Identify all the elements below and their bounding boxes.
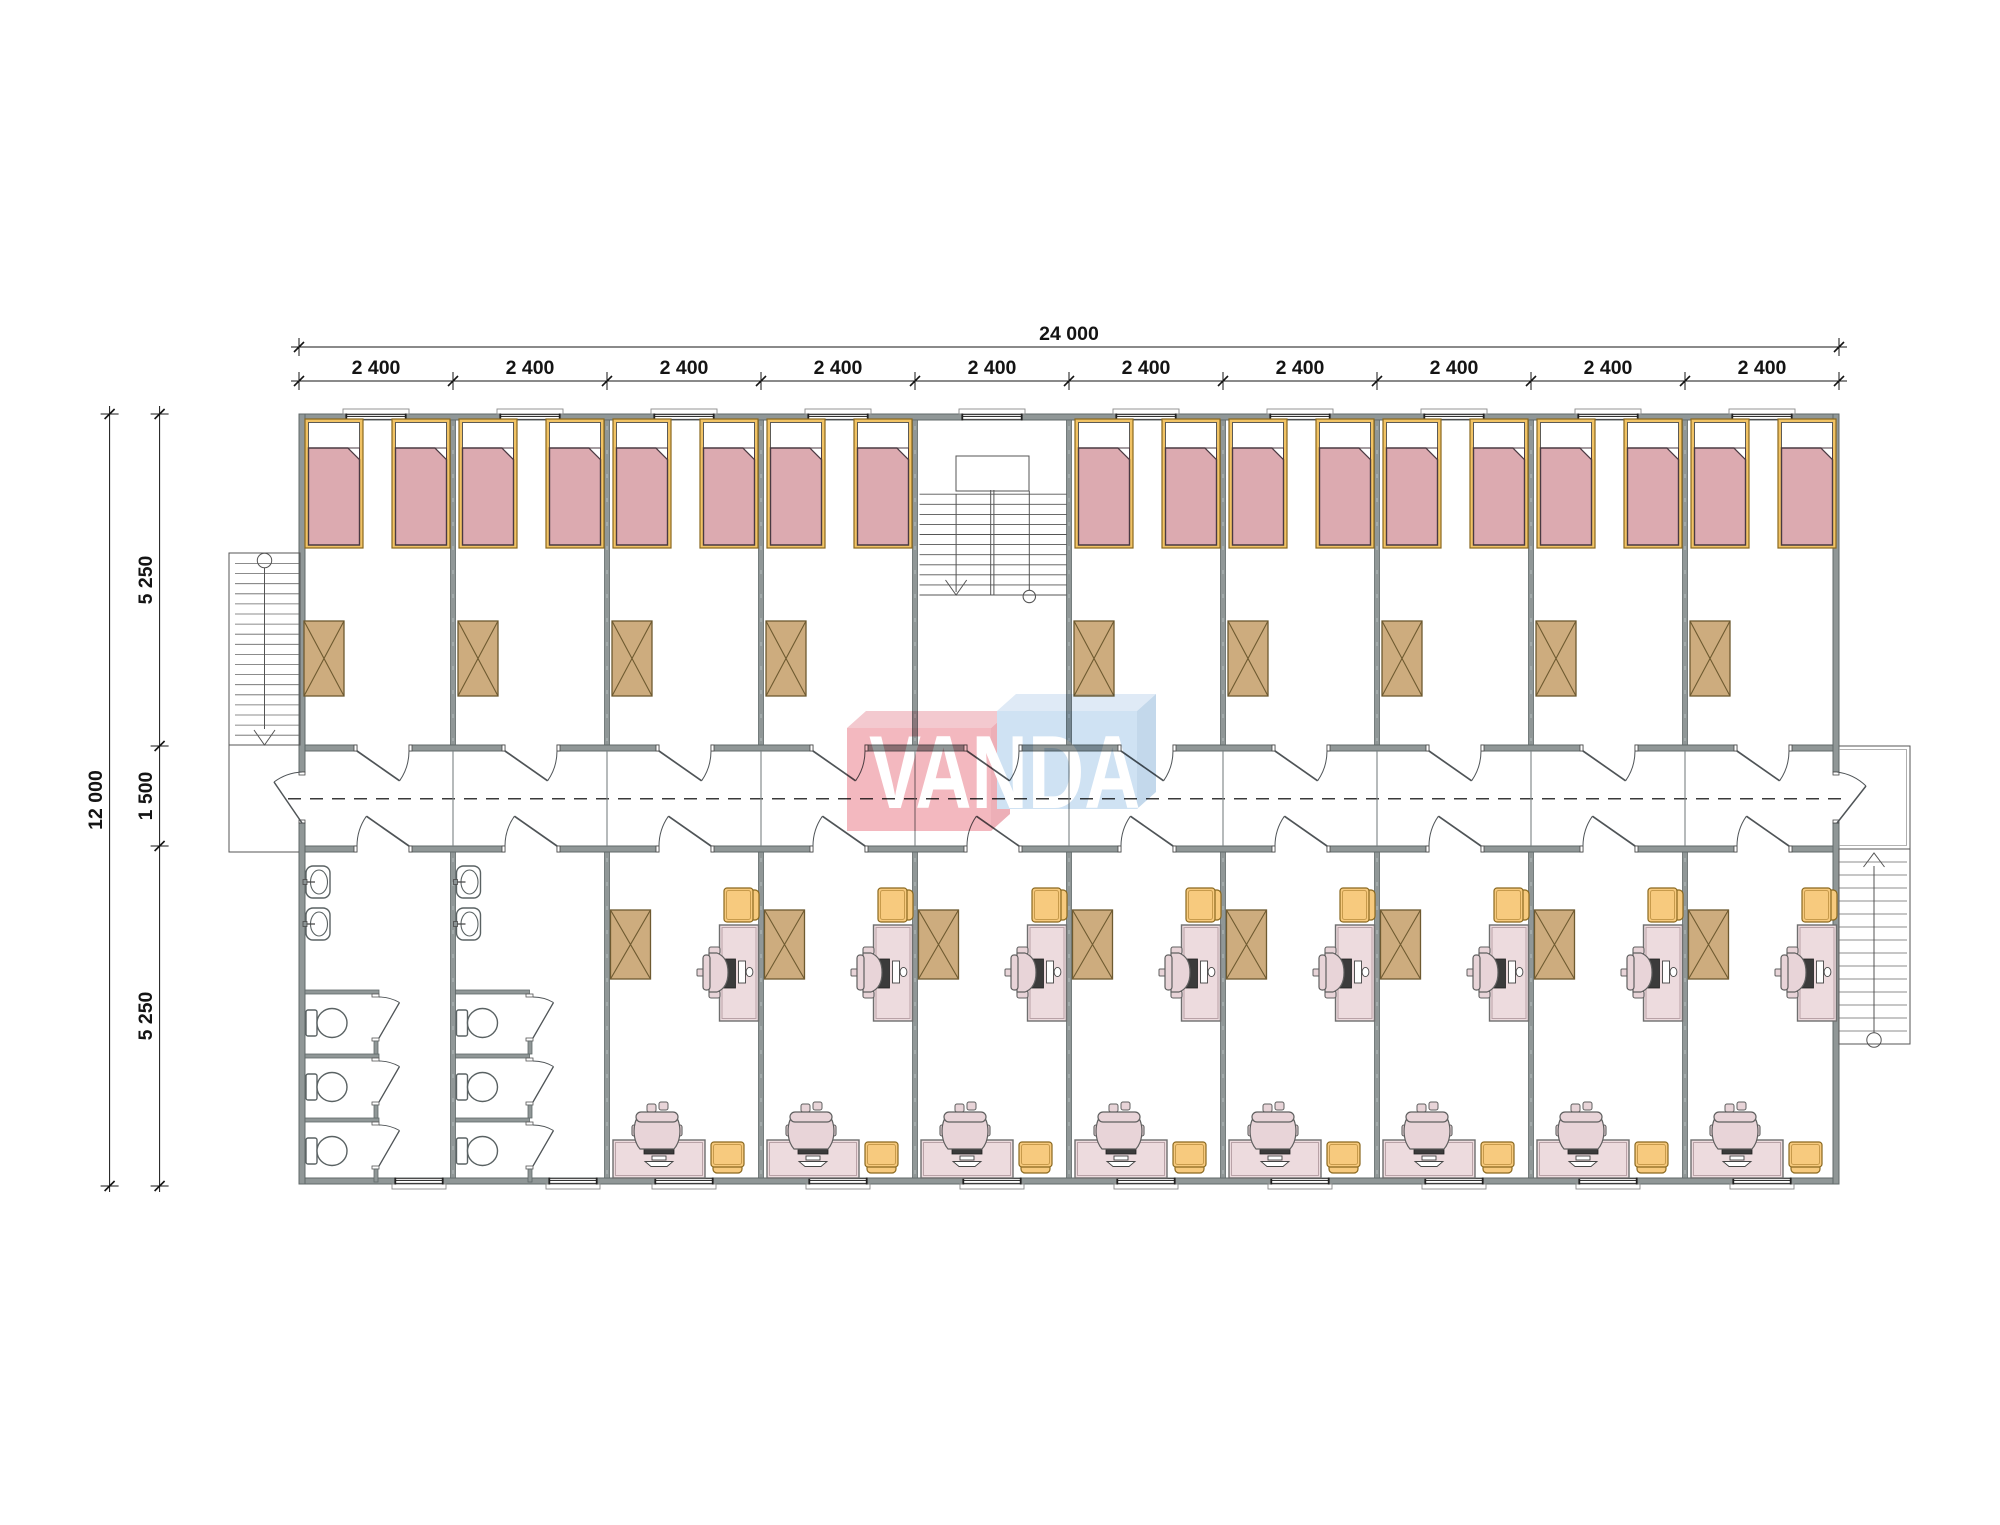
svg-text:VANDA: VANDA — [869, 715, 1141, 830]
